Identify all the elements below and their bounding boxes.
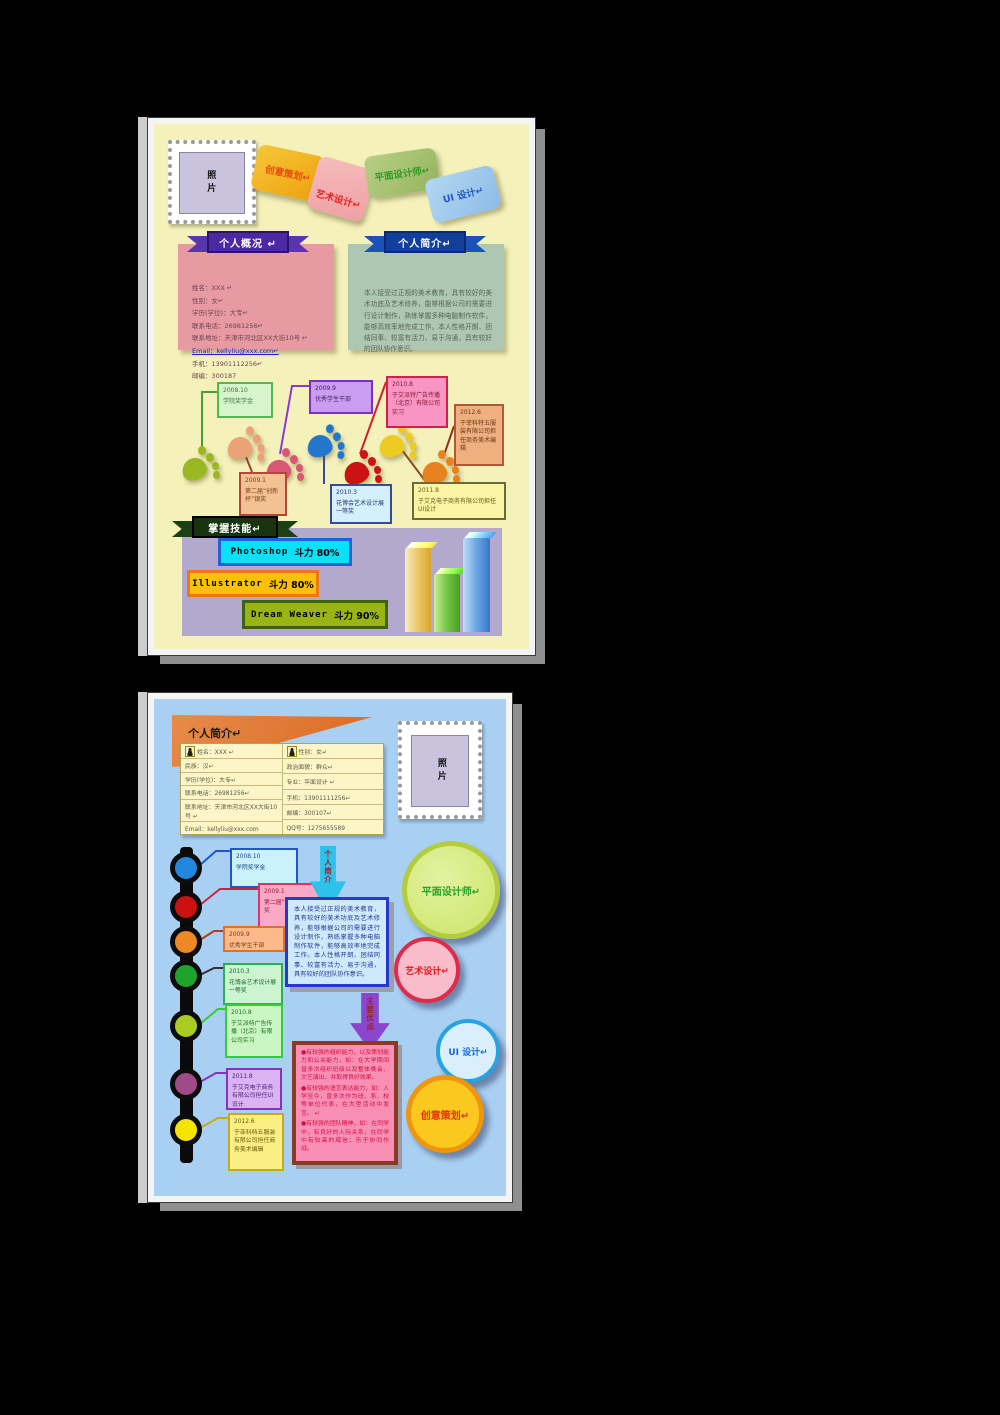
- skill-name: Dream Weaver: [251, 610, 328, 620]
- timeline-item: 2012.6 于菲科特五服装有限公司担任商务美术编辑: [454, 404, 504, 466]
- timeline-date: 2012.6: [460, 409, 498, 418]
- intro-banner: 个人简介↵: [364, 231, 486, 253]
- info-value: Email：kellyliu@xxx.com: [185, 824, 259, 833]
- timeline-date: 2009.1: [245, 477, 281, 486]
- resume-page-1: 照 片 创意策划↵ 艺术设计↵ 平面设计师↵ UI 设计↵ 姓名：XXX ↵ 性…: [148, 118, 535, 655]
- timeline-dot: [170, 891, 202, 923]
- info-value: 专业：平面设计 ↵: [287, 777, 335, 786]
- skill-level: 斗力 80%: [269, 577, 314, 591]
- info-row: 民族：汉↵: [181, 758, 282, 772]
- profile-line: 学历(学位)：大专↵: [192, 307, 326, 320]
- profile-box: 姓名：XXX ↵ 性别：女↵ 学历(学位)：大专↵ 联系电话：26981256↵…: [178, 244, 334, 350]
- info-value: 联系电话：26981256↵: [185, 788, 249, 797]
- skill-bar-illustrator: Illustrator 斗力 80%: [187, 570, 319, 597]
- timeline-text: 于菲科特五服装有限公司担任商务美术编辑: [460, 420, 498, 454]
- timeline-item: 2009.9 优秀学生干部: [223, 926, 285, 952]
- info-value: 姓名：XXX ↵: [197, 747, 234, 756]
- skill-bar-dreamweaver: Dream Weaver 斗力 90%: [242, 600, 388, 629]
- role-circle-label: UI 设计↵: [448, 1045, 487, 1058]
- photo-label-line1: 照: [207, 170, 244, 183]
- role-circle-label: 创意策划↵: [421, 1107, 469, 1122]
- timeline-item: 2012.6 于菲科特五服装有限公司担任商务美术编辑: [228, 1113, 284, 1171]
- timeline-item: 2010.3 花博会艺术设计展一等奖: [330, 484, 392, 524]
- info-row: 手机：13901111256↵: [283, 789, 384, 804]
- timeline-date: 2009.9: [229, 931, 279, 940]
- profile-banner-label: 个人概况 ↵: [207, 231, 289, 253]
- info-value: QQ号：1275655589: [287, 823, 346, 832]
- timeline-text: 花博会艺术设计展一等奖: [336, 500, 386, 517]
- info-value: 邮编：300107↵: [287, 808, 332, 817]
- timeline-date: 2009.9: [315, 385, 367, 394]
- info-value: 民族：汉↵: [185, 761, 214, 770]
- timeline-dot: [170, 1114, 202, 1146]
- timeline-text: 第二届“创新杯”银奖: [245, 488, 281, 505]
- timeline-text: 于艾克电子商务有限公司担任UI设计: [418, 498, 500, 515]
- timeline-item: 2009.9 优秀学生干部: [309, 380, 373, 414]
- skill-name: Illustrator: [192, 579, 263, 589]
- info-row: QQ号：1275655589: [283, 819, 384, 834]
- info-value: 性别：女↵: [299, 747, 328, 756]
- skills-banner: 掌握技能↵: [172, 516, 298, 538]
- timeline-date: 2009.1: [264, 888, 314, 897]
- timeline-date: 2008.10: [223, 387, 267, 396]
- role-circle-label: 艺术设计↵: [405, 964, 449, 977]
- person-icon: [287, 746, 297, 757]
- role-circle-graphic: 平面设计师↵: [402, 841, 500, 939]
- intro-text: 本人接受过正规的美术教育，具有较好的美术功底及艺术修养，能够根据公司的需要进行设…: [294, 906, 380, 978]
- info-row: 专业：平面设计 ↵: [283, 773, 384, 788]
- timeline-item: 2011.8 于艾克电子商务有限公司担任UI设计: [226, 1068, 282, 1110]
- intro-box: 本人接受过正规的美术教育，具有较好的美术功底及艺术修养，能够根据公司的需要进行设…: [285, 897, 389, 987]
- info-row: 性别：女↵: [283, 744, 384, 758]
- paw-icon: [182, 446, 220, 483]
- timeline-dot: [170, 1010, 202, 1042]
- role-circle-label: 平面设计师↵: [422, 883, 480, 898]
- resume-page-2: 个人简介↵ 姓名：XXX ↵ 民族：汉↵ 学历(学位)：大专↵ 联系电话：269…: [148, 693, 512, 1202]
- info-column-left: 姓名：XXX ↵ 民族：汉↵ 学历(学位)：大专↵ 联系电话：26981256↵…: [181, 744, 282, 834]
- info-value: 学历(学位)：大专↵: [185, 775, 236, 784]
- timeline-date: 2012.6: [234, 1118, 278, 1127]
- profile-banner: 个人概况 ↵: [187, 231, 309, 253]
- skill-bar-photoshop: Photoshop 斗力 80%: [218, 538, 352, 566]
- timeline-dot: [170, 1068, 202, 1100]
- timeline-item: 2010.8 于艾派特广告传播（北京）有限公司实习: [386, 376, 448, 428]
- intro-arrow-label: 个人简介: [323, 850, 334, 884]
- timeline-date: 2010.8: [231, 1009, 277, 1018]
- info-row: Email：kellyliu@xxx.com: [181, 821, 282, 835]
- profile-line: 姓名：XXX ↵: [192, 282, 326, 295]
- timeline-item: 2008.10 学院奖学金: [230, 848, 298, 888]
- info-card: 姓名：XXX ↵ 民族：汉↵ 学历(学位)：大专↵ 联系电话：26981256↵…: [180, 743, 384, 835]
- role-card-label: UI 设计↵: [441, 182, 485, 206]
- timeline-text: 优秀学生干部: [315, 396, 367, 405]
- timeline-dot: [170, 852, 202, 884]
- timeline-item: 2010.3 花博会艺术设计展一等奖: [223, 963, 283, 1005]
- skills-banner-label: 掌握技能↵: [192, 516, 278, 538]
- info-row: 邮编：300107↵: [283, 804, 384, 819]
- timeline-date: 2010.3: [336, 489, 386, 498]
- person-icon: [185, 746, 195, 757]
- role-circle-art: 艺术设计↵: [394, 937, 460, 1003]
- photo-stamp: 照 片: [168, 140, 256, 224]
- bar-chart-clipart: [402, 532, 494, 632]
- bar-blue: [463, 538, 490, 632]
- skill-level: 斗力 90%: [334, 608, 379, 622]
- timeline-item: 2011.8 于艾克电子商务有限公司担任UI设计: [412, 482, 506, 520]
- role-card-label: 艺术设计↵: [314, 186, 362, 212]
- timeline-item: 2009.1 第二届“创新杯”银奖: [239, 472, 287, 516]
- intro-text: 本人接受过正规的美术教育，具有较好的美术功底及艺术修养，能够根据公司的需要进行设…: [364, 288, 492, 356]
- profile-line: 性别：女↵: [192, 295, 326, 308]
- timeline-text: 于菲科特五服装有限公司担任商务美术编辑: [234, 1129, 278, 1155]
- photo-placeholder: 照 片: [179, 152, 245, 214]
- photo-placeholder: 照 片: [411, 735, 469, 807]
- profile-line: 联系电话：26981256↵: [192, 320, 326, 333]
- page2-header-label: 个人简介↵: [188, 727, 241, 740]
- photo-stamp: 照 片: [398, 721, 482, 819]
- timeline-date: 2010.8: [392, 381, 442, 390]
- timeline-text: 于艾克电子商务有限公司担任UI设计: [232, 1084, 276, 1110]
- photo-label-line1: 照: [438, 758, 468, 771]
- info-row: 联系电话：26981256↵: [181, 785, 282, 799]
- info-column-right: 性别：女↵ 政治面貌：群众↵ 专业：平面设计 ↵ 手机：13901111256↵…: [282, 744, 384, 834]
- timeline-text: 优秀学生干部: [229, 942, 279, 951]
- strength-item: ●有较强的团队精神，如：在同学中，有良好的人际关系，在同学中有较高的威信；乐于协…: [301, 1120, 389, 1154]
- document-viewer: 照 片 创意策划↵ 艺术设计↵ 平面设计师↵ UI 设计↵ 姓名：XXX ↵ 性…: [0, 0, 1000, 1415]
- timeline-text: 于艾派特广告传播（北京）有限公司实习: [392, 392, 442, 418]
- timeline-date: 2010.3: [229, 968, 277, 977]
- timeline-date: 2011.8: [232, 1073, 276, 1082]
- timeline-date: 2011.8: [418, 487, 500, 496]
- bar-yellow: [405, 548, 431, 632]
- strength-item: ●有较强的语言表达能力，如：入学至今，曾多次作为班、系、校等单位代表，在大型活动…: [301, 1085, 389, 1119]
- info-value: 政治面貌：群众↵: [287, 762, 333, 771]
- role-circle-planning: 创意策划↵: [406, 1075, 484, 1153]
- photo-label-line2: 片: [438, 771, 468, 784]
- info-value: 联系地址：天津市河北区XX大街10号 ↵: [185, 802, 279, 820]
- profile-line: 手机：13901112256↵: [192, 358, 326, 371]
- info-row: 政治面貌：群众↵: [283, 758, 384, 773]
- paw-icon: [226, 424, 269, 466]
- info-row: 学历(学位)：大专↵: [181, 772, 282, 786]
- timeline-dot: [170, 960, 202, 992]
- profile-line: 联系地址：天津市河北区XX大街10号 ↵: [192, 332, 326, 345]
- info-row: 联系地址：天津市河北区XX大街10号 ↵: [181, 799, 282, 821]
- role-card-label: 平面设计师↵: [374, 162, 431, 184]
- timeline-text: 花博会艺术设计展一等奖: [229, 979, 277, 996]
- timeline-item: 2010.8 于艾派特广告传播（北京）有限公司实习: [225, 1004, 283, 1058]
- photo-label-line2: 片: [207, 183, 244, 196]
- intro-banner-label: 个人简介↵: [384, 231, 466, 253]
- timeline-item: 2008.10 学院奖学金: [217, 382, 273, 418]
- paw-icon: [306, 422, 349, 464]
- strengths-arrow-label: 主要优点: [365, 997, 376, 1031]
- timeline-text: 于艾派特广告传播（北京）有限公司实习: [231, 1020, 277, 1046]
- timeline-text: 学院奖学金: [223, 398, 267, 407]
- bar-green: [434, 574, 460, 632]
- intro-box: 本人接受过正规的美术教育，具有较好的美术功底及艺术修养，能够根据公司的需要进行设…: [348, 244, 504, 350]
- email-link[interactable]: Email：kellyliu@xxx.com↵: [192, 345, 326, 358]
- skill-level: 斗力 80%: [294, 545, 339, 559]
- skill-name: Photoshop: [231, 547, 289, 557]
- strength-item: ●有较强的组织能力，以及策划能力和公关能力，如：在大学期间曾多次组织班级以及整体…: [301, 1049, 389, 1083]
- strengths-box: ●有较强的组织能力，以及策划能力和公关能力，如：在大学期间曾多次组织班级以及整体…: [292, 1041, 398, 1165]
- profile-line: 邮编：300187: [192, 370, 326, 383]
- info-value: 手机：13901111256↵: [287, 793, 351, 802]
- role-circle-ui: UI 设计↵: [436, 1019, 500, 1083]
- timeline-date: 2008.10: [236, 853, 292, 862]
- paw-icon: [344, 450, 382, 487]
- info-row: 姓名：XXX ↵: [181, 744, 282, 758]
- role-card-label: 创意策划↵: [264, 161, 312, 184]
- timeline-text: 学院奖学金: [236, 864, 292, 873]
- timeline-dot: [170, 926, 202, 958]
